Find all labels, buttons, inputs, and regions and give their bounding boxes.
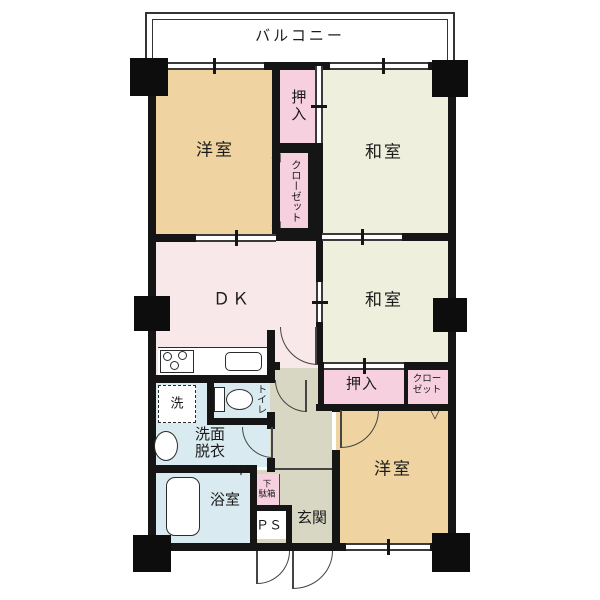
wall-ps-right xyxy=(286,511,292,543)
folding-door-marker-closet1-bottom: ◁ xyxy=(271,219,280,231)
folding-door-marker-closet2: ▽ xyxy=(430,408,439,420)
wall-oshiire1-right-lower xyxy=(315,143,323,234)
floor-hall-lower xyxy=(267,410,332,470)
room-label-ps: ＰＳ xyxy=(256,519,282,534)
wall-hall-west-c xyxy=(267,458,275,472)
room-label-closet-2: クロー ゼット xyxy=(413,374,442,395)
floor-plan: バルコニー xyxy=(0,0,600,600)
window-tick xyxy=(387,539,390,555)
pillar-mid-left xyxy=(134,296,170,331)
room-label-oshiire-2: 押入 xyxy=(346,377,378,394)
door-leaf-washroom xyxy=(271,427,273,458)
room-label-bath: 浴室 xyxy=(210,493,240,510)
sliding-door-tick xyxy=(361,229,364,245)
entrance-step-line xyxy=(275,468,332,470)
pillar-mid-right xyxy=(433,298,467,332)
balcony-label: バルコニー xyxy=(255,29,345,46)
door-leaf-ps xyxy=(256,551,258,584)
room-label-japanese-1: 和室 xyxy=(365,142,403,161)
stove-burner xyxy=(163,352,172,361)
closet2-line2: ゼット xyxy=(413,384,442,395)
room-label-dk: ＤＫ xyxy=(213,289,251,308)
room-label-shoebox: 下 駄箱 xyxy=(258,479,275,498)
bathtub xyxy=(166,477,200,536)
room-label-washroom: 洗面 脱衣 xyxy=(195,427,225,461)
wall-oshiire2-closet2 xyxy=(404,368,408,407)
wall-dk-japanese2-upper xyxy=(316,237,323,282)
wall-western1-dk xyxy=(155,234,196,242)
pillar-bottom-left xyxy=(133,535,171,572)
window-tick xyxy=(382,58,385,74)
washbasin xyxy=(154,431,178,461)
sliding-door-tick xyxy=(311,105,327,108)
stove-burner xyxy=(178,351,187,360)
kitchen-sink-icon xyxy=(225,352,262,371)
door-leaf-western2 xyxy=(340,410,342,448)
room-label-closet-1: クローゼット xyxy=(289,160,301,223)
sliding-door-tick xyxy=(235,230,238,246)
door-leaf-toilet xyxy=(305,380,307,412)
closet2-line1: クロー xyxy=(413,373,442,384)
room-label-japanese-2: 和室 xyxy=(365,290,403,309)
room-label-western-1: 洋室 xyxy=(196,140,234,159)
toilet-bowl xyxy=(226,389,253,410)
wall-japanese12-east xyxy=(402,233,448,241)
wall-oshiire2-top-right xyxy=(404,362,448,370)
wall-hall-west-a xyxy=(267,330,275,380)
door-leaf-entrance xyxy=(292,551,294,589)
wall-western2-left-upper xyxy=(332,404,340,412)
room-label-oshiire-1: 押入 xyxy=(289,89,306,123)
wall-western2-left-lower xyxy=(332,450,340,551)
pillar-top-right xyxy=(432,60,468,97)
room-label-entrance: 玄関 xyxy=(297,511,327,528)
toilet-tank xyxy=(214,387,225,412)
pillar-top-left xyxy=(130,58,168,96)
stove-burner xyxy=(170,361,179,370)
folding-door-marker-bath: ▽ xyxy=(236,464,245,476)
pillar-bottom-right xyxy=(432,533,470,572)
folding-door-marker-closet1-top: ◁ xyxy=(271,151,280,163)
sliding-door-tick xyxy=(363,358,366,374)
shoebox-line1: 下 xyxy=(263,478,272,488)
wall-toilet-bottom xyxy=(207,418,275,425)
room-label-toilet: トイレ xyxy=(254,384,265,414)
door-arc-entrance xyxy=(293,551,333,589)
washroom-line1: 洗面 xyxy=(195,426,225,443)
window-balcony-east xyxy=(330,62,428,70)
window-tick xyxy=(213,58,216,74)
sliding-door-tick xyxy=(312,301,328,304)
room-label-laundry: 洗 xyxy=(170,397,183,412)
window-balcony-west xyxy=(168,62,264,70)
door-arc-ps xyxy=(257,551,290,584)
room-label-western-2: 洋室 xyxy=(374,459,412,478)
shoebox-line2: 駄箱 xyxy=(258,488,275,498)
washroom-line2: 脱衣 xyxy=(195,443,225,460)
door-leaf-dk xyxy=(315,327,317,365)
wall-oshiire1-closet1 xyxy=(278,143,318,153)
wall-hall-top-stub xyxy=(267,362,280,370)
